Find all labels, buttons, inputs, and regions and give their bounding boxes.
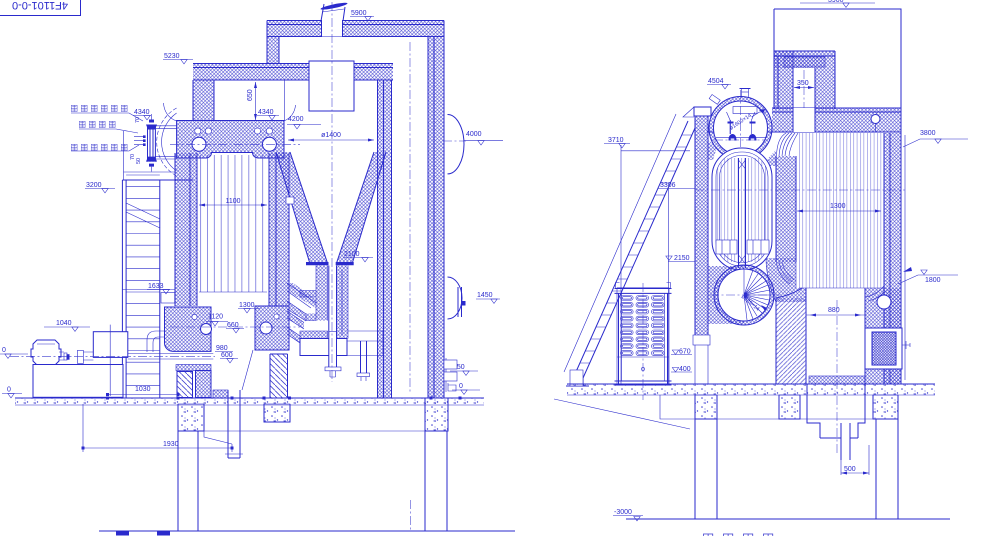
svg-text:1300: 1300: [239, 302, 255, 309]
svg-text:3306: 3306: [660, 182, 676, 189]
svg-text:5900: 5900: [351, 10, 367, 17]
svg-text:1100: 1100: [225, 198, 240, 205]
svg-text:5230: 5230: [164, 53, 180, 60]
svg-text:2100: 2100: [344, 251, 360, 258]
svg-text:50: 50: [136, 158, 142, 164]
svg-text:880: 880: [828, 307, 840, 314]
svg-text:660: 660: [227, 322, 239, 329]
svg-text:1450: 1450: [477, 292, 493, 299]
svg-text:4504: 4504: [708, 78, 724, 85]
svg-text:ø1400: ø1400: [321, 132, 341, 139]
svg-text:350: 350: [797, 80, 809, 87]
svg-text:1930: 1930: [163, 441, 179, 448]
svg-text:1030: 1030: [135, 386, 151, 393]
svg-text:-3000: -3000: [614, 509, 632, 516]
svg-text:0: 0: [459, 383, 463, 390]
svg-text:1040: 1040: [56, 320, 72, 327]
svg-text:3900: 3900: [828, 0, 844, 4]
svg-text:4340: 4340: [258, 109, 274, 116]
svg-text:980: 980: [216, 345, 228, 352]
svg-text:1633: 1633: [148, 283, 164, 290]
svg-text:0: 0: [2, 347, 6, 354]
svg-text:3710: 3710: [608, 137, 624, 144]
svg-text:1300: 1300: [830, 203, 846, 210]
svg-text:500: 500: [844, 466, 856, 473]
svg-text:4000: 4000: [466, 131, 482, 138]
svg-text:1120: 1120: [208, 314, 223, 321]
svg-text:4340: 4340: [134, 109, 150, 116]
svg-text:3200: 3200: [86, 182, 102, 189]
svg-text:3800: 3800: [920, 130, 936, 137]
svg-text:70: 70: [135, 117, 141, 123]
svg-text:0: 0: [7, 387, 11, 394]
svg-text:2150: 2150: [674, 255, 690, 262]
svg-text:600: 600: [221, 352, 233, 359]
svg-text:650: 650: [247, 89, 254, 101]
svg-text:1800: 1800: [925, 277, 941, 284]
svg-text:4200: 4200: [288, 116, 304, 123]
svg-text:4F1101-0-0: 4F1101-0-0: [12, 0, 68, 11]
